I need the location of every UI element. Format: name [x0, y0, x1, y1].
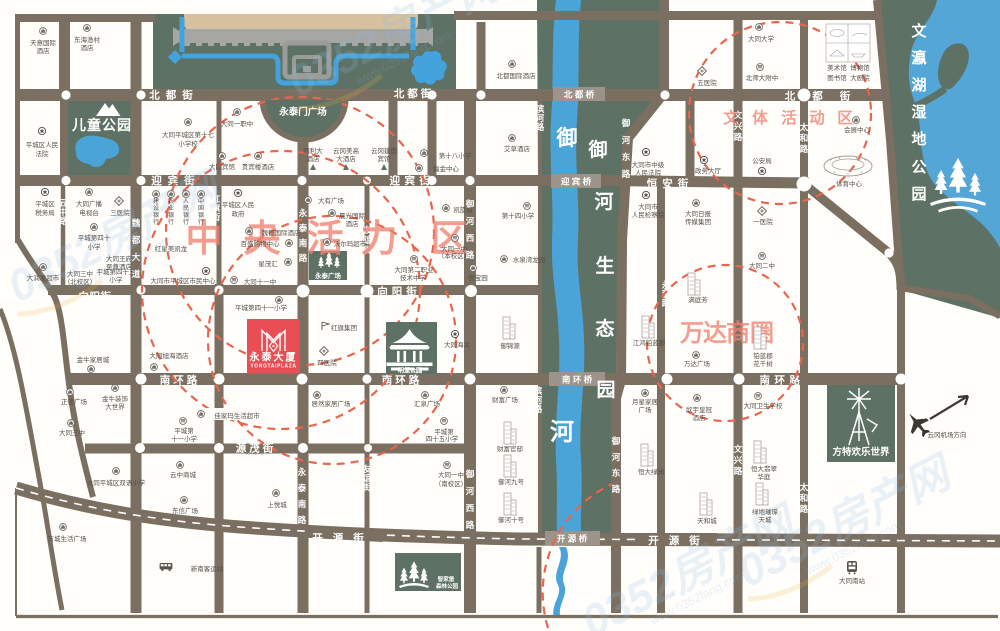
svg-text:政务大厅: 政务大厅 — [695, 166, 722, 175]
svg-text:大同海关: 大同海关 — [444, 340, 471, 349]
svg-text:南环路: 南环路 — [760, 374, 805, 387]
svg-text:大同平城区双语小学: 大同平城区双语小学 — [87, 478, 146, 487]
svg-text:御河九号: 御河九号 — [498, 477, 525, 486]
svg-text:中国银行: 中国银行 — [198, 197, 204, 226]
svg-text:公: 公 — [911, 159, 926, 176]
svg-text:北都街: 北都街 — [785, 90, 868, 103]
svg-text:东信广场: 东信广场 — [172, 506, 199, 515]
svg-text:大同宾馆: 大同宾馆 — [209, 162, 236, 171]
svg-text:（北校区）: （北校区） — [64, 277, 97, 286]
svg-text:体育中心: 体育中心 — [836, 179, 863, 188]
svg-text:恒安街: 恒安街 — [647, 177, 694, 190]
svg-text:万城生活广场: 万城生活广场 — [48, 534, 88, 543]
svg-text:北都国际酒店: 北都国际酒店 — [497, 71, 537, 80]
svg-text:沃尔玛超市: 沃尔玛超市 — [334, 239, 367, 248]
svg-text:广场: 广场 — [639, 405, 653, 414]
svg-text:福金中心: 福金中心 — [433, 164, 460, 173]
svg-text:宾馆: 宾馆 — [378, 154, 392, 163]
svg-text:湖: 湖 — [911, 77, 926, 94]
svg-text:御: 御 — [587, 138, 607, 161]
svg-text:滨河路: 滨河路 — [536, 104, 545, 132]
svg-text:大同平城区第十七: 大同平城区第十七 — [162, 130, 215, 139]
svg-text:南环路: 南环路 — [160, 374, 201, 387]
svg-text:酒店: 酒店 — [307, 154, 321, 163]
svg-text:上悦城: 上悦城 — [267, 500, 287, 509]
svg-text:开 源 桥: 开 源 桥 — [557, 534, 588, 544]
svg-text:大同日报: 大同日报 — [685, 209, 712, 218]
svg-text:向阳街: 向阳街 — [377, 285, 421, 298]
svg-text:铂蓝郡: 铂蓝郡 — [753, 351, 773, 360]
svg-text:态: 态 — [595, 317, 614, 340]
svg-text:百盛购物中心: 百盛购物中心 — [241, 239, 281, 248]
svg-text:开源街: 开源街 — [312, 532, 374, 545]
svg-text:贵宾楼酒店: 贵宾楼酒店 — [242, 162, 275, 171]
svg-text:恒大翡翠: 恒大翡翠 — [751, 464, 778, 473]
svg-text:魏都国际酒店: 魏都国际酒店 — [262, 228, 302, 237]
svg-text:园: 园 — [596, 379, 615, 401]
svg-text:税务局: 税务局 — [35, 208, 55, 217]
svg-text:生: 生 — [595, 254, 614, 277]
svg-text:园: 园 — [911, 186, 926, 203]
svg-text:大同市中级: 大同市中级 — [632, 160, 665, 169]
svg-text:动: 动 — [809, 109, 825, 127]
svg-text:满庭芳: 满庭芳 — [688, 295, 708, 304]
svg-text:平城第: 平城第 — [434, 427, 454, 436]
svg-text:迎宾街: 迎宾街 — [390, 174, 435, 187]
svg-text:第十四小学: 第十四小学 — [502, 211, 535, 220]
svg-text:酒店: 酒店 — [346, 219, 360, 228]
svg-text:智家堡: 智家堡 — [438, 575, 455, 583]
svg-text:大酒店: 大酒店 — [336, 154, 356, 163]
svg-text:万: 万 — [680, 320, 704, 347]
svg-text:晨光国际: 晨光国际 — [339, 211, 366, 220]
svg-text:商: 商 — [726, 319, 750, 347]
svg-text:平城区: 平城区 — [35, 200, 55, 208]
svg-text:文: 文 — [911, 22, 927, 40]
svg-text:财富官邸: 财富官邸 — [497, 444, 524, 453]
svg-text:永泰大厦: 永泰大厦 — [249, 351, 298, 364]
svg-text:区: 区 — [837, 109, 853, 127]
svg-text:酒店: 酒店 — [693, 413, 707, 422]
svg-text:金牛装饰: 金牛装饰 — [102, 394, 129, 403]
svg-text:明堂公园: 明堂公园 — [398, 367, 422, 375]
svg-text:御锦源: 御锦源 — [500, 341, 520, 350]
svg-text:东海渔村: 东海渔村 — [74, 35, 101, 44]
svg-text:河: 河 — [594, 191, 613, 213]
svg-text:达: 达 — [703, 320, 727, 347]
svg-text:大同三中: 大同三中 — [59, 428, 85, 437]
svg-text:公安局: 公安局 — [752, 156, 772, 165]
svg-text:大同一中: 大同一中 — [441, 244, 467, 253]
svg-text:河: 河 — [550, 419, 574, 446]
svg-text:太和路: 太和路 — [799, 482, 809, 514]
svg-text:大同市平城区市民中心: 大同市平城区市民中心 — [151, 276, 217, 285]
svg-text:第十八小学: 第十八小学 — [439, 151, 472, 160]
svg-text:凯旋城: 凯旋城 — [453, 205, 473, 214]
svg-text:传媒集团: 传媒集团 — [685, 217, 711, 226]
svg-text:酒店: 酒店 — [81, 43, 95, 52]
svg-text:博物馆: 博物馆 — [850, 63, 870, 72]
svg-text:金牛家居城: 金牛家居城 — [77, 355, 110, 364]
svg-text:大同大学: 大同大学 — [748, 34, 775, 43]
svg-text:会展中心: 会展中心 — [844, 125, 871, 134]
svg-text:四医院: 四医院 — [317, 358, 337, 367]
svg-text:永和路: 永和路 — [661, 280, 671, 308]
svg-text:财富广场: 财富广场 — [492, 395, 519, 404]
svg-text:小学: 小学 — [110, 275, 124, 284]
svg-text:华庭: 华庭 — [758, 472, 772, 481]
svg-text:月星家居: 月星家居 — [632, 397, 659, 406]
svg-text:太和路: 太和路 — [799, 122, 809, 154]
svg-text:艾草酒店: 艾草酒店 — [504, 144, 531, 153]
svg-text:天和城: 天和城 — [697, 516, 717, 525]
svg-text:湿: 湿 — [911, 104, 926, 121]
svg-text:大同卫生学校: 大同卫生学校 — [744, 401, 784, 410]
svg-text:北都街: 北都街 — [149, 89, 199, 102]
svg-text:平城第四十三: 平城第四十三 — [97, 267, 137, 276]
svg-text:友谊街: 友谊街 — [362, 464, 372, 492]
svg-text:图书馆: 图书馆 — [827, 73, 847, 82]
svg-text:红星美凯龙: 红星美凯龙 — [155, 244, 188, 253]
svg-text:花千树: 花千树 — [753, 359, 773, 368]
svg-text:活: 活 — [781, 108, 797, 127]
svg-text:滨河路: 滨河路 — [534, 386, 543, 414]
svg-text:源茂街: 源茂街 — [236, 442, 277, 455]
svg-text:云冈机场方向: 云冈机场方向 — [928, 430, 967, 439]
svg-text:大润发超市: 大润发超市 — [27, 273, 60, 282]
svg-text:YONGTAIPLAZA: YONGTAIPLAZA — [250, 364, 296, 370]
svg-text:大同一职中: 大同一职中 — [221, 119, 254, 128]
svg-text:同利大: 同利大 — [303, 146, 323, 155]
svg-text:江鸿铂蓝郡: 江鸿铂蓝郡 — [633, 338, 666, 347]
svg-text:绿地璀璨: 绿地璀璨 — [752, 507, 779, 516]
svg-text:正德广场: 正德广场 — [61, 397, 88, 406]
svg-text:北 都 桥: 北 都 桥 — [564, 90, 595, 100]
svg-text:大同一中: 大同一中 — [438, 470, 464, 479]
svg-text:永泰广场: 永泰广场 — [314, 271, 342, 280]
svg-text:人民法院: 人民法院 — [635, 168, 662, 177]
svg-text:小学校: 小学校 — [178, 139, 198, 148]
svg-text:五医院: 五医院 — [697, 78, 717, 87]
svg-text:大同三中: 大同三中 — [67, 269, 93, 278]
svg-text:活: 活 — [307, 218, 344, 259]
svg-text:美术馆: 美术馆 — [827, 63, 847, 72]
svg-text:大剧院: 大剧院 — [850, 73, 870, 82]
svg-text:（本校区）: （本校区） — [438, 251, 471, 260]
svg-text:北师大附中: 北师大附中 — [746, 73, 779, 82]
svg-text:方特欢乐世界: 方特欢乐世界 — [832, 446, 890, 458]
svg-text:平城第四十一小学: 平城第四十一小学 — [235, 303, 288, 312]
svg-text:云中路: 云中路 — [59, 198, 68, 226]
svg-text:建设银行: 建设银行 — [153, 197, 159, 226]
svg-text:一医院: 一医院 — [753, 217, 773, 226]
svg-text:农业银行: 农业银行 — [168, 197, 174, 226]
svg-text:悦宝园: 悦宝园 — [468, 273, 488, 282]
svg-text:御: 御 — [556, 126, 578, 150]
svg-text:欣宇皇冠: 欣宇皇冠 — [686, 405, 713, 414]
svg-text:体: 体 — [752, 108, 768, 127]
svg-text:十一小学: 十一小学 — [171, 434, 198, 443]
svg-text:文兴路: 文兴路 — [734, 444, 743, 476]
svg-text:大同王府: 大同王府 — [106, 254, 133, 263]
svg-text:平城区人民: 平城区人民 — [26, 141, 59, 149]
svg-text:儿童公园: 儿童公园 — [71, 117, 132, 133]
svg-text:大有广场: 大有广场 — [318, 196, 345, 205]
svg-text:小学: 小学 — [88, 242, 102, 251]
svg-text:平城第: 平城第 — [174, 426, 194, 435]
svg-text:天意国际: 天意国际 — [30, 38, 57, 47]
svg-text:森林公园: 森林公园 — [435, 582, 459, 590]
svg-text:汇泉广场: 汇泉广场 — [414, 399, 441, 408]
svg-text:居然家居广场: 居然家居广场 — [312, 399, 352, 408]
svg-text:万达广场: 万达广场 — [684, 359, 711, 368]
svg-text:恒大绿洲: 恒大绿洲 — [638, 467, 664, 476]
svg-text:云冈建国: 云冈建国 — [371, 146, 397, 155]
svg-text:（南校区）: （南校区） — [435, 479, 468, 488]
svg-text:北都街: 北都街 — [394, 87, 435, 100]
svg-text:大同南站: 大同南站 — [839, 576, 866, 585]
svg-text:地: 地 — [911, 130, 926, 148]
svg-text:迎 宾 桥: 迎 宾 桥 — [561, 177, 592, 187]
svg-text:红旗集团: 红旗集团 — [331, 323, 357, 332]
svg-text:政府: 政府 — [232, 209, 246, 218]
svg-text:大同旭海酒店: 大同旭海酒店 — [150, 351, 190, 360]
svg-text:平城第四十: 平城第四十 — [78, 233, 111, 242]
svg-text:云中商城: 云中商城 — [170, 470, 197, 479]
svg-text:电视台: 电视台 — [79, 208, 99, 217]
svg-text:天城: 天城 — [759, 516, 773, 524]
svg-text:平城区人民: 平城区人民 — [222, 201, 255, 209]
svg-text:人民检察院: 人民检察院 — [632, 210, 665, 219]
svg-text:瀛: 瀛 — [911, 49, 926, 67]
svg-text:大同二中: 大同二中 — [749, 261, 775, 270]
svg-text:大同十一中: 大同十一中 — [244, 277, 277, 286]
svg-text:大同市: 大同市 — [638, 202, 658, 211]
svg-text:法院: 法院 — [36, 149, 50, 158]
svg-text:南环路: 南环路 — [382, 374, 423, 387]
svg-text:新南客运站: 新南客运站 — [191, 564, 224, 573]
svg-text:央: 央 — [244, 218, 282, 259]
svg-text:酒店: 酒店 — [37, 46, 51, 55]
svg-text:水泉湾龙园: 水泉湾龙园 — [513, 255, 546, 264]
svg-text:文: 文 — [723, 108, 739, 127]
svg-text:三医院: 三医院 — [110, 208, 130, 217]
svg-text:大同广播: 大同广播 — [76, 199, 103, 208]
svg-text:御河十号: 御河十号 — [498, 515, 525, 524]
svg-text:星茂汇: 星茂汇 — [258, 259, 278, 268]
svg-text:力: 力 — [361, 218, 398, 259]
svg-text:四十五小学: 四十五小学 — [426, 434, 459, 443]
svg-text:云冈美高: 云冈美高 — [333, 146, 360, 155]
svg-text:佳家玛生活超市: 佳家玛生活超市 — [214, 411, 260, 420]
svg-text:大同第二职业: 大同第二职业 — [395, 265, 435, 274]
svg-text:南 环 桥: 南 环 桥 — [562, 375, 593, 385]
svg-text:技术中学: 技术中学 — [400, 273, 427, 282]
svg-text:大世界: 大世界 — [105, 402, 125, 411]
